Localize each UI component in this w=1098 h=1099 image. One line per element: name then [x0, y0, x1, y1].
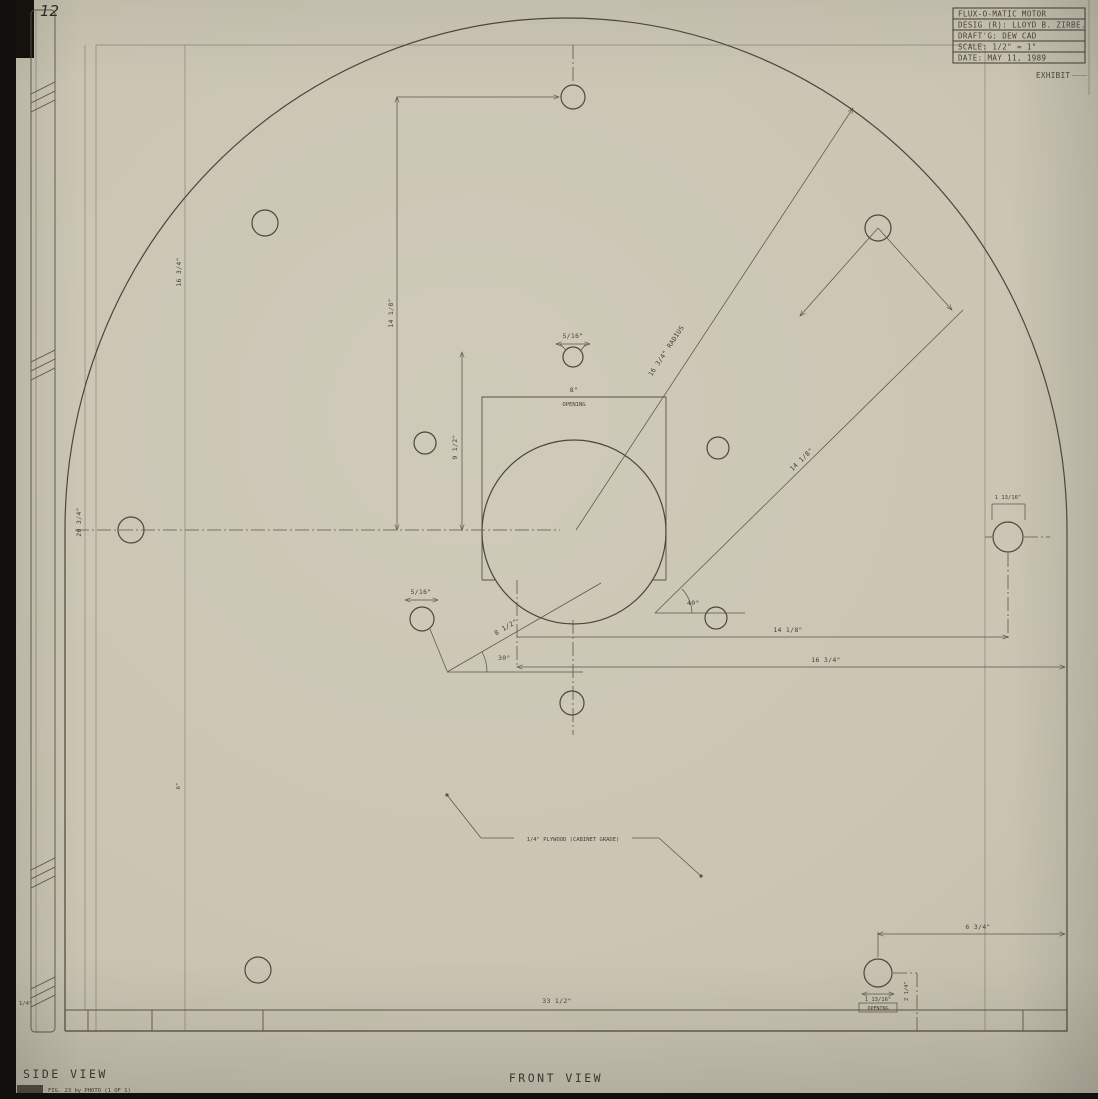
dim-14-18-horizontal: 14 1/8" — [773, 626, 803, 634]
dim-16-34-horizontal: 16 3/4" — [811, 656, 841, 664]
title-block-row-scale: SCALE: 1/2" = 1" — [958, 43, 1037, 52]
dim-20-34-vertical: 20 3/4" — [75, 507, 83, 537]
title-block-row-date: DATE: MAY 11, 1989 — [958, 54, 1046, 63]
title-block-row-designer: DESIG (R): LLOYD B. ZIRBE. — [958, 21, 1086, 30]
note-plywood: 1/4" PLYWOOD (CABINET GRADE) — [527, 837, 620, 843]
dim-opening-label: OPENING — [562, 402, 585, 408]
corner-opening-hole — [864, 959, 892, 987]
title-block-row-drafting: DRAFT'G: DEW CAD — [958, 32, 1037, 41]
title-block: FLUX-O-MATIC MOTOR DESIG (R): LLOYD B. Z… — [953, 0, 1089, 95]
center-opening — [482, 397, 666, 624]
drawing-svg: 1/4" 12 — [0, 0, 1098, 1099]
dim-opening-width: 8" — [570, 386, 578, 394]
bolt-holes — [118, 85, 1023, 987]
dim-radius: 16 3/4" RADIUS — [647, 324, 686, 378]
hatch-marks — [31, 82, 55, 1007]
dim-5-16-top: 5/16" — [562, 332, 583, 340]
plate-outline — [65, 18, 1067, 1031]
side-thickness-label: 1/4" — [19, 1001, 32, 1007]
centerlines — [75, 45, 1050, 1031]
center-hole — [482, 440, 666, 624]
dim-2-14: 2 1/4" — [904, 981, 910, 1001]
exhibit-label: EXHIBIT — [1036, 71, 1070, 80]
dim-corner-opening-size: 1 13/16" — [865, 997, 892, 1003]
front-view-drawing — [65, 18, 1067, 1031]
angle-40-label: 40° — [687, 599, 700, 607]
dim-6-34: 6 3/4" — [965, 923, 990, 931]
angle-30-label: 30° — [498, 654, 511, 662]
dim-6-vertical: 6" — [176, 783, 182, 790]
dim-1-13-16-right: 1 13/16" — [995, 495, 1022, 501]
page-number: 12 — [40, 2, 59, 20]
dim-33-12: 33 1/2" — [542, 997, 572, 1005]
dim-16-34-vertical: 16 3/4" — [175, 257, 183, 287]
fig-caption: FIG. 23 by PHOTO (1 OF 1) — [48, 1088, 131, 1094]
dim-14-18-vertical: 14 1/8" — [387, 298, 395, 328]
side-view-label: SIDE VIEW — [23, 1067, 108, 1081]
dim-corner-opening-label: OPENING — [867, 1006, 888, 1012]
dimensions: 14 1/8" 16 3/4" 20 3/4" 6" 9 1/2" 8" OPE… — [75, 97, 1065, 1012]
dim-8-12-diagonal: 8 1/2" — [493, 617, 519, 637]
fig-caption-chip — [17, 1085, 43, 1093]
construction-lines — [85, 45, 985, 1031]
front-view-label: FRONT VIEW — [509, 1071, 603, 1085]
dim-9-12-vertical: 9 1/2" — [451, 434, 459, 459]
side-view-drawing: 1/4" 12 — [19, 2, 59, 1032]
dim-5-16-low: 5/16" — [410, 588, 431, 596]
blueprint-photo: 1/4" 12 — [0, 0, 1098, 1099]
title-block-row-title: FLUX-O-MATIC MOTOR — [958, 10, 1047, 19]
